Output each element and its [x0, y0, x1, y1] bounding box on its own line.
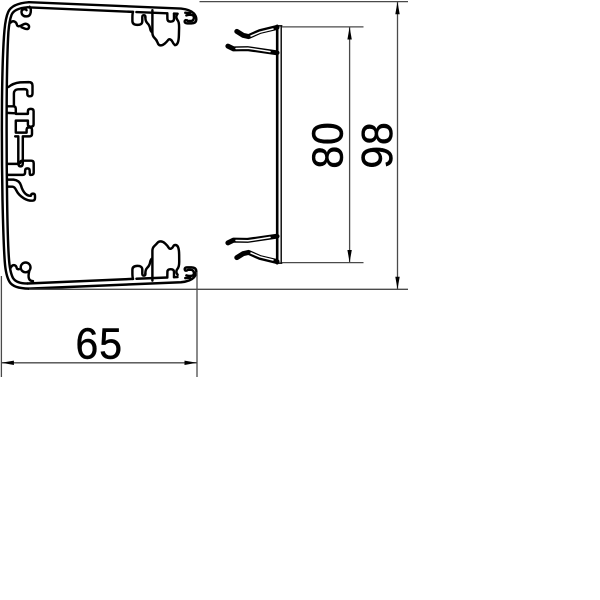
svg-text:98: 98 — [353, 121, 401, 168]
svg-text:80: 80 — [304, 121, 352, 168]
svg-text:65: 65 — [76, 319, 123, 367]
